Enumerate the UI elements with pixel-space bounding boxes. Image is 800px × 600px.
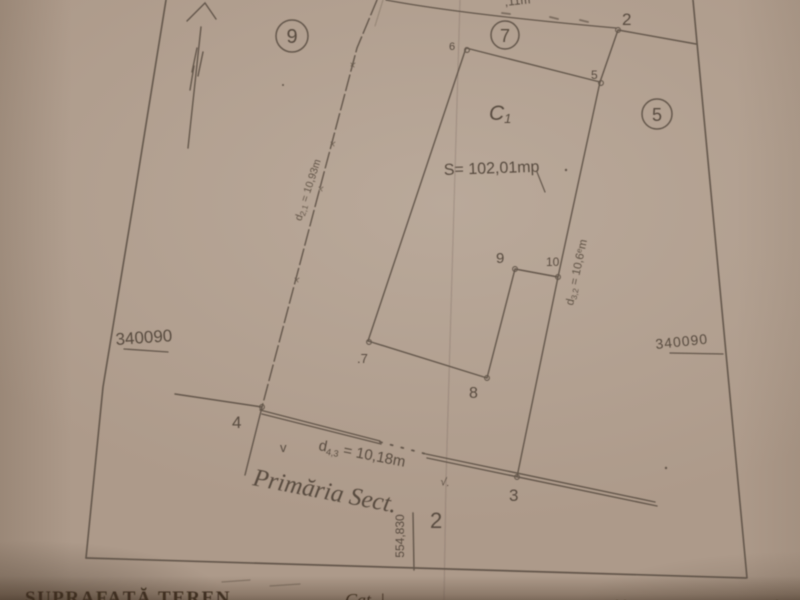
svg-text:d2,1 = 10,93m: d2,1 = 10,93m xyxy=(293,158,325,223)
svg-text:3: 3 xyxy=(509,486,518,505)
svg-text:2: 2 xyxy=(622,10,631,29)
svg-text:7: 7 xyxy=(500,26,510,46)
svg-text:Primăria Sect.: Primăria Sect. xyxy=(250,464,399,519)
svg-text:d3,2 = 10,6em: d3,2 = 10,6em xyxy=(563,238,591,307)
svg-text:,11m: ,11m xyxy=(504,0,531,9)
svg-text:5: 5 xyxy=(652,105,662,125)
svg-text:Cat. |: Cat. | xyxy=(345,590,385,600)
svg-text:9: 9 xyxy=(496,250,504,267)
svg-text:.7: .7 xyxy=(357,351,368,366)
svg-text:SUPRAFAŢĂ TEREN: SUPRAFAŢĂ TEREN xyxy=(25,587,231,600)
svg-text:.: . xyxy=(775,589,779,600)
svg-text:6: 6 xyxy=(449,41,455,53)
svg-text:C1: C1 xyxy=(489,102,511,126)
svg-text:8: 8 xyxy=(469,385,478,402)
svg-text:. .: . . xyxy=(615,589,627,600)
svg-text:v: v xyxy=(280,440,287,455)
svg-text:10: 10 xyxy=(546,255,560,269)
svg-text:2: 2 xyxy=(430,508,442,533)
svg-text:340090: 340090 xyxy=(655,331,709,352)
svg-text:S= 102,01mp: S= 102,01mp xyxy=(444,159,540,179)
svg-text:4: 4 xyxy=(232,413,241,432)
svg-text:5: 5 xyxy=(591,68,598,82)
svg-text:√.: √. xyxy=(440,476,451,489)
svg-text:d4,3 = 10,18m: d4,3 = 10,18m xyxy=(317,437,407,471)
svg-text:340090: 340090 xyxy=(115,326,173,349)
svg-text:554,830: 554,830 xyxy=(393,514,407,558)
svg-text:9: 9 xyxy=(286,26,297,48)
